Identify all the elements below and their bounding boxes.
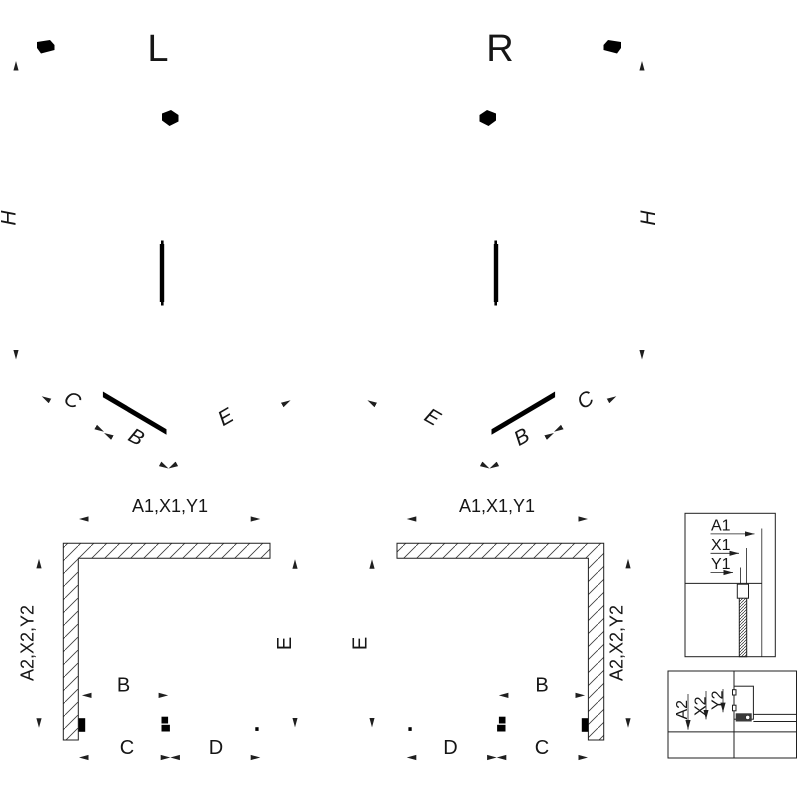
iso-view-right [367, 40, 645, 469]
variant-label-right: R [486, 28, 513, 70]
dim-label-C-plan-left: C [120, 737, 134, 759]
detail-view-top [685, 513, 775, 656]
dim-label-B-right: B [510, 424, 533, 451]
dim-label-E-right: E [420, 404, 444, 431]
detail-label-X1: X1 [711, 537, 731, 554]
profile-notch [733, 690, 737, 695]
detail-label-Y2: Y2 [710, 690, 727, 710]
wall-hatched [397, 543, 604, 740]
dim-label-E-left: E [214, 403, 238, 430]
screw-icon [746, 715, 750, 719]
dim-label-C-left: C [60, 387, 85, 415]
dim-label-C-right: C [573, 386, 598, 414]
wall-hatched [63, 543, 270, 740]
dim-label-A1X1Y1-right: A1,X1,Y1 [459, 496, 535, 516]
dim-label-A1X1Y1-left: A1,X1,Y1 [132, 496, 208, 516]
dim-label-B-plan-left: B [117, 675, 130, 697]
technical-drawing-page: L H C B E R H E B C A1,X1,Y1 A2,X2,Y2 E … [0, 0, 800, 800]
dim-label-A2X2Y2-right: A2,X2,Y2 [607, 605, 627, 681]
dim-label-C-plan-right: C [535, 737, 549, 759]
drawing-canvas: L H C B E R H E B C A1,X1,Y1 A2,X2,Y2 E … [0, 0, 800, 800]
plan-view-left [36, 514, 299, 763]
dim-label-D-plan-left: D [209, 737, 223, 759]
profile-notch [733, 705, 737, 711]
dim-label-B-left: B [124, 424, 147, 451]
dim-label-H-left: H [0, 210, 21, 226]
dim-label-E-plan-right: E [350, 637, 372, 650]
detail-label-Y1: Y1 [711, 556, 731, 573]
detail-label-X2: X2 [693, 696, 710, 716]
dim-label-E-plan-left: E [274, 637, 296, 650]
dim-label-B-plan-right: B [535, 675, 548, 697]
rail-lines [753, 714, 796, 721]
variant-label-left: L [147, 28, 168, 70]
detail-label-A1: A1 [711, 518, 731, 535]
plan-view-right [368, 514, 631, 763]
profile-cap [737, 584, 748, 598]
dim-label-A2X2Y2-left: A2,X2,Y2 [18, 605, 38, 681]
dim-label-D-plan-right: D [443, 737, 457, 759]
detail-label-A2: A2 [674, 700, 691, 720]
iso-view-left [13, 40, 291, 469]
dim-label-H-right: H [637, 210, 660, 226]
